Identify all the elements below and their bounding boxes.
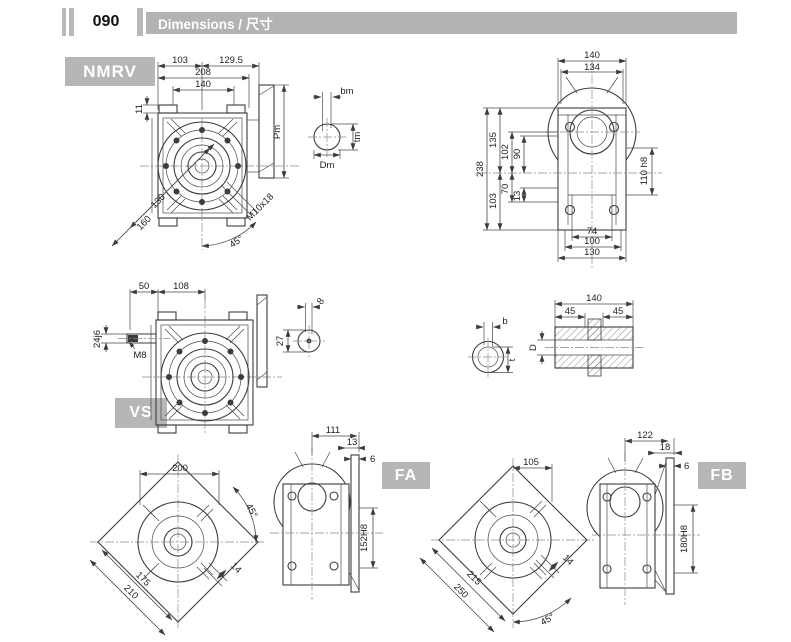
dim-130-diag: 130 [149, 192, 168, 211]
dim-45deg-fa: 45° [243, 502, 260, 520]
dim-103-side: 103 [488, 193, 499, 209]
dim-pm: Pm [272, 125, 283, 139]
dim-215: 215 [464, 569, 483, 588]
dim-135: 135 [488, 132, 499, 148]
dim-140-front: 140 [195, 79, 211, 90]
dim-200: 200 [172, 463, 188, 474]
dim-50: 50 [139, 281, 150, 292]
dim-103: 103 [172, 55, 188, 66]
dim-238: 238 [475, 161, 486, 177]
nmrv-front-view: 103 129.5 208 140 11 Pm 130 160 M10x18 4… [112, 55, 300, 251]
dim-250: 250 [451, 582, 470, 601]
dim-bm: bm [340, 86, 353, 97]
dim-45-right: 45 [613, 306, 624, 317]
vs-front-view: M8 24j6 50 108 [92, 281, 282, 435]
hollow-shaft-section: 140 45 45 D [528, 293, 643, 376]
dim-102: 102 [500, 144, 511, 160]
dim-18-fb: 18 [660, 442, 671, 453]
dim-27: 27 [275, 336, 286, 347]
fb-side-view: 122 18 6 180H8 [587, 430, 700, 605]
dim-45deg-nmrv: 45° [228, 233, 246, 250]
fb-front-view: 105 215 250 14 45° [420, 457, 595, 632]
dim-b: b [502, 316, 507, 327]
dim-14-fa: 14 [228, 561, 243, 576]
dim-108: 108 [173, 281, 189, 292]
dim-6-fb: 6 [684, 461, 689, 472]
dim-m10x18: M10x18 [244, 191, 276, 223]
vs-input-shaft-detail: 8 27 [275, 296, 327, 357]
dim-160-diag: 160 [135, 214, 154, 233]
dim-tm: tm [352, 132, 363, 143]
dim-t: t [507, 358, 518, 361]
dim-d: D [528, 344, 539, 351]
dim-110h8: 110 h8 [639, 157, 650, 185]
dim-6-fa: 6 [370, 454, 375, 465]
dim-8: 8 [315, 296, 327, 307]
dim-140-hollow: 140 [586, 293, 602, 304]
dim-45deg-fb: 45° [539, 611, 557, 628]
nmrv-side-view: 140 134 74 100 130 238 135 [475, 50, 662, 268]
dim-129-5: 129.5 [219, 55, 243, 66]
dim-130-side: 130 [584, 247, 600, 258]
dim-dm: Dm [320, 160, 335, 171]
dim-m8: M8 [133, 350, 146, 361]
dim-180h8: 180H8 [679, 525, 690, 553]
dim-90: 90 [512, 149, 523, 160]
dim-111: 111 [326, 425, 340, 436]
fa-front-view: 200 45° 175 210 14 [90, 454, 266, 635]
output-shaft-detail: bm tm Dm [308, 86, 363, 171]
dim-140-side: 140 [584, 50, 600, 61]
dim-14-fb: 14 [560, 553, 575, 568]
dim-45-left: 45 [565, 306, 576, 317]
bore-section-detail: b t [468, 316, 518, 377]
dim-152h8: 152H8 [359, 524, 370, 552]
fa-side-view: 111 13 6 152H8 [270, 425, 383, 600]
technical-drawings: 103 129.5 208 140 11 Pm 130 160 M10x18 4… [0, 0, 791, 642]
dim-105: 105 [523, 457, 539, 468]
dim-100: 100 [584, 236, 600, 247]
dim-208: 208 [195, 67, 211, 78]
dim-24j6: 24j6 [92, 330, 103, 348]
catalog-page: 090 Dimensions / 尺寸 NMRV VS FA FB [0, 0, 791, 642]
dim-11: 11 [134, 104, 145, 114]
dim-13-fa: 13 [347, 437, 358, 448]
dim-134: 134 [584, 62, 600, 73]
dim-122: 122 [637, 430, 653, 441]
dim-13: 13 [512, 191, 523, 202]
dim-70: 70 [500, 184, 511, 195]
